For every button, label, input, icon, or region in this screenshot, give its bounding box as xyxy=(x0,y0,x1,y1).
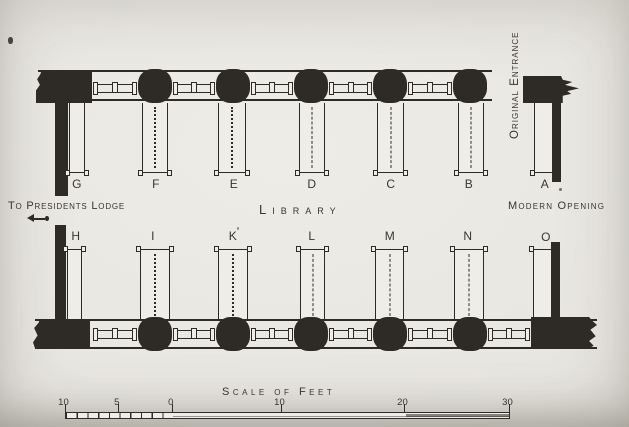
window xyxy=(330,330,371,339)
photo-speck xyxy=(8,37,13,44)
bookcase-foot xyxy=(65,170,70,176)
scale-tick-label: 10 xyxy=(274,397,285,408)
bookcase-label: I xyxy=(151,229,155,243)
bookcase-f xyxy=(142,103,168,173)
window xyxy=(252,330,292,339)
window xyxy=(94,84,136,93)
bookcase-g xyxy=(69,103,85,173)
window xyxy=(174,84,214,93)
bookcase-foot xyxy=(245,170,250,176)
window-mullion xyxy=(191,328,197,339)
shelf-line xyxy=(389,254,390,316)
photo-speck xyxy=(237,227,239,230)
window-mullion xyxy=(269,82,275,93)
bookcase-label: F xyxy=(152,177,160,191)
bookcase-foot xyxy=(371,246,376,252)
bookcase-foot xyxy=(169,246,174,252)
photo-speck xyxy=(559,188,562,191)
bookcase-foot xyxy=(483,246,488,252)
scale-tick-label: 5 xyxy=(114,397,119,408)
bookcase-label: O xyxy=(541,230,551,244)
north-west-corner-pier xyxy=(36,70,92,103)
window-mullion xyxy=(269,328,275,339)
bookcase-foot xyxy=(214,246,219,252)
bookcase-foot xyxy=(530,170,535,176)
window-mullion xyxy=(506,328,512,339)
bookcase-foot xyxy=(167,170,172,176)
wall-pier xyxy=(294,317,328,351)
bookcase-foot xyxy=(324,170,329,176)
bookcase-foot xyxy=(63,246,68,252)
bookcase-label: H xyxy=(71,229,80,243)
wall-pier xyxy=(453,317,487,351)
bookcase-foot xyxy=(81,246,86,252)
bookcase-c xyxy=(377,103,404,173)
window xyxy=(489,330,529,339)
scale-filled-segment xyxy=(406,414,509,417)
wall-pier xyxy=(216,69,250,103)
shelf-line xyxy=(390,107,391,168)
bookcase-label: A xyxy=(541,177,550,191)
south-east-wall-block xyxy=(531,317,597,349)
wall-pier xyxy=(373,317,407,351)
bookcase-foot xyxy=(454,170,459,176)
scale-tick-label: 30 xyxy=(502,397,513,408)
bookcase-o xyxy=(533,249,551,320)
bookcase-label: K xyxy=(229,229,238,243)
bookcase-foot xyxy=(84,170,89,176)
library-floor-plan: G F E D C B A To Presidents Lodge Librar… xyxy=(0,0,629,427)
bookcase-k xyxy=(218,249,248,320)
left-arrow-icon xyxy=(27,214,51,224)
wall-pier xyxy=(373,69,407,103)
bookcase-label: L xyxy=(308,229,315,243)
wall-pier xyxy=(138,69,172,103)
room-label: Library xyxy=(259,202,342,217)
bookcase-foot xyxy=(296,246,301,252)
west-passage-label: To Presidents Lodge xyxy=(8,200,125,212)
window-mullion xyxy=(427,82,433,93)
shelf-line xyxy=(312,107,313,168)
scale-tick-label: 20 xyxy=(397,397,408,408)
window-mullion xyxy=(348,328,354,339)
bookcase-foot xyxy=(529,246,534,252)
window-mullion xyxy=(112,82,118,93)
shelf-line xyxy=(471,107,472,168)
west-wall-upper xyxy=(55,101,68,196)
shelf-line xyxy=(469,254,470,316)
window xyxy=(252,84,292,93)
bookcase-foot xyxy=(136,246,141,252)
window xyxy=(174,330,214,339)
bookcase-label: G xyxy=(72,177,82,191)
scale-bar-line xyxy=(65,412,510,419)
window-mullion xyxy=(348,82,354,93)
scale-tick-label: 10 xyxy=(58,397,69,408)
window xyxy=(330,84,371,93)
bookcase-label: D xyxy=(307,177,316,191)
scale-tick-label: 0 xyxy=(168,397,173,408)
shelf-line xyxy=(154,107,156,168)
bookcase-foot xyxy=(450,246,455,252)
bookcase-h xyxy=(67,249,82,320)
north-east-wall-block xyxy=(523,76,579,103)
window xyxy=(409,330,451,339)
shelf-line xyxy=(312,254,313,316)
window-mullion xyxy=(427,328,433,339)
bookcase-a xyxy=(534,103,552,173)
wall-pier xyxy=(453,69,487,103)
bookcase-d xyxy=(299,103,325,173)
bookcase-foot xyxy=(324,246,329,252)
east-wall-stub-upper xyxy=(552,103,561,182)
bookcase-label: M xyxy=(385,229,396,243)
original-entrance-label: Original Entrance xyxy=(509,4,521,139)
west-wall-lower xyxy=(55,225,66,321)
bookcase-label: E xyxy=(230,177,239,191)
bookcase-foot xyxy=(138,170,143,176)
shelf-line xyxy=(232,254,234,316)
bookcase-foot xyxy=(295,170,300,176)
window xyxy=(409,84,451,93)
window xyxy=(94,330,136,339)
bookcase-foot xyxy=(214,170,219,176)
east-wall-stub-lower xyxy=(551,242,560,320)
shelf-line xyxy=(231,107,233,168)
south-west-corner-pier xyxy=(33,319,90,349)
bookcase-b xyxy=(458,103,484,173)
bookcase-foot xyxy=(403,246,408,252)
window-mullion xyxy=(191,82,197,93)
modern-opening-label: Modern Opening xyxy=(508,200,605,212)
wall-pier xyxy=(216,317,250,351)
wall-pier xyxy=(294,69,328,103)
bookcase-label: N xyxy=(463,229,472,243)
bookcase-label: C xyxy=(386,177,395,191)
bookcase-n xyxy=(454,249,484,320)
wall-pier xyxy=(138,317,172,351)
shelf-line xyxy=(154,254,156,316)
bookcase-l xyxy=(300,249,325,320)
bookcase-foot xyxy=(483,170,488,176)
bookcase-label: B xyxy=(465,177,474,191)
window-mullion xyxy=(112,328,118,339)
bookcase-foot xyxy=(373,170,378,176)
bookcase-m xyxy=(375,249,404,320)
bookcase-foot xyxy=(247,246,252,252)
bookcase-i xyxy=(140,249,170,320)
bookcase-e xyxy=(218,103,246,173)
bookcase-foot xyxy=(403,170,408,176)
scale-subdivisions xyxy=(66,413,173,418)
